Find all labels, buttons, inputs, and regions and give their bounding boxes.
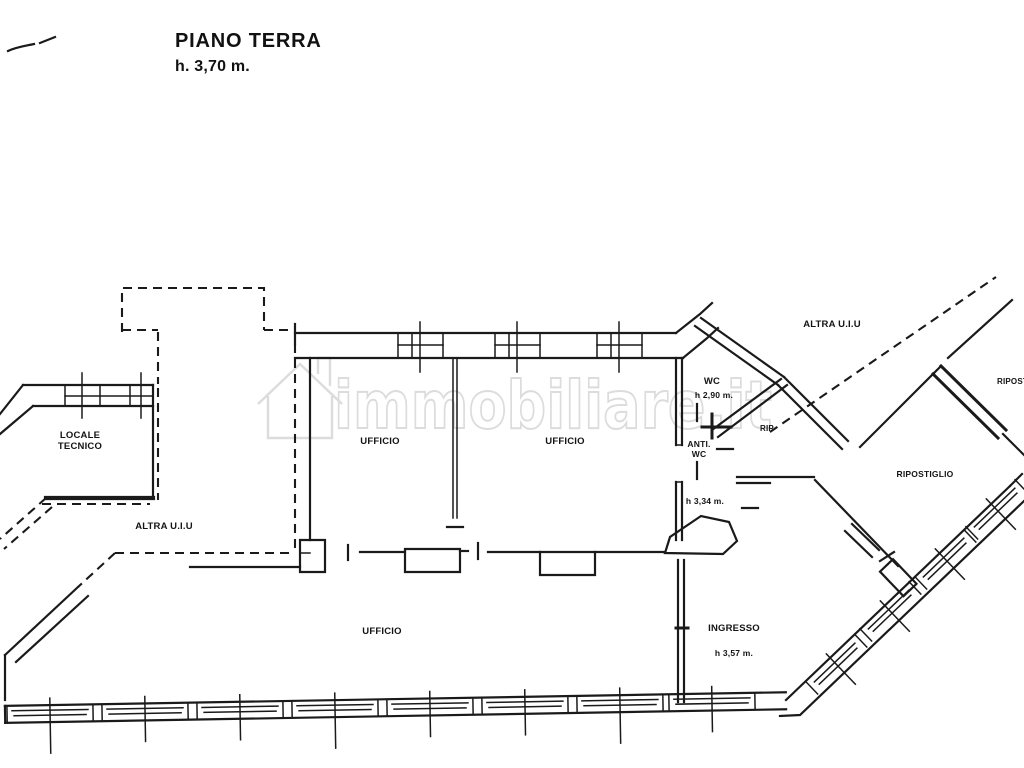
middle-wall-band bbox=[300, 516, 737, 575]
house-icon bbox=[258, 358, 342, 438]
room-label-anti-wc-line2: WC bbox=[692, 449, 707, 459]
room-label-ufficio-top-left: UFFICIO bbox=[340, 437, 420, 448]
floorplan-drawing: immobiliare.it bbox=[0, 0, 1024, 768]
plan-title-height: h. 3,70 m. bbox=[175, 58, 250, 76]
room-label-anti-wc-line1: ANTI. bbox=[687, 439, 710, 449]
plan-title: PIANO TERRA bbox=[175, 30, 322, 53]
room-label-locale-tecnico-line2: TECNICO bbox=[58, 441, 102, 452]
ingresso-walls bbox=[676, 560, 688, 702]
right-wing-walls bbox=[845, 300, 1024, 561]
room-label-anti-wc: ANTI. WC bbox=[677, 440, 721, 460]
locale-tecnico-walls bbox=[0, 324, 295, 498]
room-label-ripostiglio: RIPOSTIGLIO bbox=[878, 470, 972, 480]
room-label-rip: RIP bbox=[752, 424, 782, 433]
room-height-anti-wc: h 3,34 m. bbox=[676, 497, 734, 507]
wall-pier bbox=[880, 559, 917, 596]
room-label-ufficio-main: UFFICIO bbox=[342, 627, 422, 638]
room-label-altra-uiu-left: ALTRA U.I.U bbox=[122, 522, 206, 533]
room-label-locale-tecnico: LOCALE TECNICO bbox=[40, 431, 120, 453]
lower-left-walls bbox=[5, 567, 300, 700]
watermark: immobiliare.it bbox=[258, 358, 772, 444]
room-height-wc: h 2,90 m. bbox=[684, 391, 744, 401]
room-label-altra-uiu-right: ALTRA U.I.U bbox=[790, 320, 874, 331]
top-wall-windows bbox=[398, 322, 642, 372]
room-label-locale-tecnico-line1: LOCALE bbox=[60, 430, 100, 441]
diagonal-wall bbox=[780, 474, 1024, 716]
room-label-ripostiglio-clipped: RIPOSTIGLIO bbox=[997, 377, 1024, 386]
pen-mark bbox=[8, 37, 55, 51]
room-height-ingresso: h 3,57 m. bbox=[694, 649, 774, 659]
room-label-ingresso: INGRESSO bbox=[694, 624, 774, 635]
bottom-wall bbox=[5, 685, 787, 754]
room-label-wc: WC bbox=[687, 377, 737, 388]
floorplan-page: immobiliare.it bbox=[0, 0, 1024, 768]
room-label-ufficio-top-right: UFFICIO bbox=[525, 437, 605, 448]
